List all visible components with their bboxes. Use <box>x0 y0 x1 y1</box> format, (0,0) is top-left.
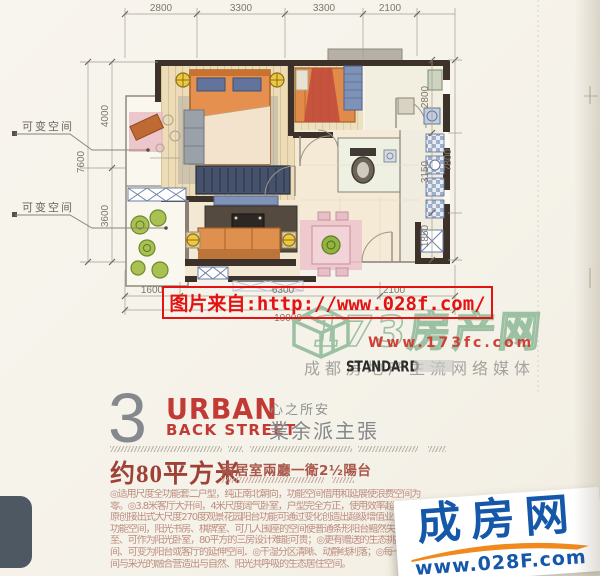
description-line: 间与采光的融合营造出与自然、阳光共呼吸的生态居住空间。 <box>110 559 430 571</box>
plant-icon <box>131 210 168 278</box>
section-number: 3 <box>108 390 147 446</box>
hatched-divider <box>250 446 352 452</box>
description-line: 至、可作为阳光卧室，80平方的三房设计难能可贵；◎更有赠送的生态挑板空 <box>110 535 430 547</box>
door-arcs <box>265 130 392 262</box>
hatched-divider <box>110 446 222 452</box>
description-line: 功能空间，阳光书房、棋牌室、可几人围座的空间使普通条形阳台黯然失色；甚 <box>110 524 430 536</box>
dim-label: 2100 <box>379 3 402 14</box>
hatched-divider <box>358 446 418 452</box>
lamp-icon <box>187 234 295 246</box>
page: 2800 3300 3300 2100 4000 3600 7600 2800 … <box>0 0 600 576</box>
description-paragraph: ◎适用尺度全功能套二户型，纯正南北朝向，功能空间借用和延展使浪费空间为 零。◎3… <box>110 489 430 570</box>
section-tagline-2: 業余派主張 <box>269 415 379 444</box>
red-watermark-text: 图片来自:http://www.028f.com/ <box>169 289 485 316</box>
flex-space-label: 可变空间 <box>22 200 74 214</box>
dim-label: 3150 <box>420 160 431 183</box>
dim-label: 3300 <box>313 3 336 14</box>
flex-space-label: 可变空间 <box>22 119 74 133</box>
standard-tag-box <box>414 360 454 372</box>
second-bedroom <box>295 66 362 122</box>
standard-label: STANDARD <box>346 359 419 376</box>
dim-label: 3300 <box>230 3 253 14</box>
dim-label: 7800 <box>443 148 454 171</box>
kitchen <box>426 134 444 218</box>
dim-label: 2800 <box>150 3 173 14</box>
dim-label: 3600 <box>100 204 111 227</box>
flex-space-callouts: 可变空间 可变空间 <box>12 119 168 230</box>
description-line: 原创接出式大尺度270度观景花园阳台功能可通过变化创造出超级增值业主私密 <box>110 512 430 524</box>
balcony-top-right <box>396 70 442 128</box>
red-watermark-box: 图片来自:http://www.028f.com/ <box>162 286 493 319</box>
lamp-icon <box>176 73 284 87</box>
hatched-divider <box>428 446 446 452</box>
dim-label: 7600 <box>76 150 87 173</box>
dim-label: 1600 <box>141 285 164 296</box>
028f-logo: 成房网 www.028F.com <box>393 487 600 576</box>
dim-label: 1850 <box>420 224 431 247</box>
page-edge-shadow <box>574 0 600 576</box>
plan-walls <box>155 60 450 282</box>
plant-icon <box>322 236 340 254</box>
hatched-underline <box>221 477 324 483</box>
dim-label: 2800 <box>420 85 431 108</box>
bathroom <box>350 148 396 183</box>
dimension-annotations: 2800 3300 3300 2100 4000 3600 7600 2800 … <box>76 3 462 324</box>
hatched-divider <box>228 446 243 452</box>
description-line: 零。◎3.8米客厅大开间，4米尺度阔气卧室，户型完全方正，使用效率超大。◎ <box>110 501 430 513</box>
description-line: 间、可变为阳台或客厅的延伸空间．◎干湿分区清晰、动静线利落；◎每一个房 <box>110 547 430 559</box>
description-line: ◎适用尺度全功能套二户型，纯正南北朝向，功能空间借用和延展使浪费空间为 <box>110 489 430 501</box>
dining-area <box>300 212 362 276</box>
layout-headline: 兩居室兩廳一衛2½陽台 <box>221 459 371 479</box>
hatched-underline <box>332 477 354 483</box>
living-room <box>186 196 297 259</box>
corner-chip <box>0 496 32 568</box>
flex-room <box>129 112 180 158</box>
watermark-site-url: Www.173fc.com <box>368 335 534 351</box>
dim-label: 4000 <box>100 104 111 127</box>
plant-balcony <box>131 210 168 278</box>
master-bedroom <box>176 70 290 194</box>
window-bays <box>128 188 443 291</box>
plan-floors <box>126 49 445 286</box>
